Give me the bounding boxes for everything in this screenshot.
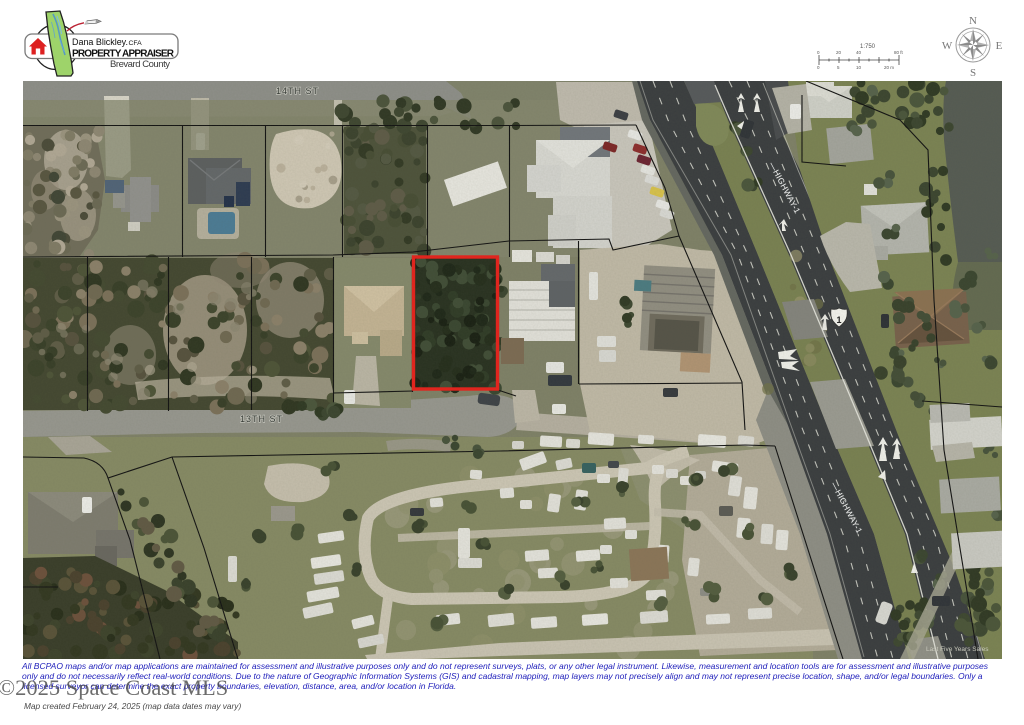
svg-text:80 ft: 80 ft	[894, 50, 904, 55]
svg-text:0: 0	[817, 50, 820, 55]
svg-text:PROPERTY APPRAISER: PROPERTY APPRAISER	[72, 49, 175, 60]
svg-text:10: 10	[856, 65, 862, 70]
svg-text:Brevard County: Brevard County	[110, 59, 170, 70]
svg-text:E: E	[996, 40, 1003, 52]
svg-text:5: 5	[837, 65, 840, 70]
svg-text:S: S	[970, 67, 976, 79]
svg-text:20: 20	[836, 50, 842, 55]
svg-text:40: 40	[856, 50, 862, 55]
svg-text:20 m: 20 m	[884, 65, 894, 70]
svg-text:CFA: CFA	[129, 40, 143, 47]
svg-text:1:750: 1:750	[860, 44, 876, 50]
svg-text:N: N	[969, 15, 977, 27]
svg-text:W: W	[942, 40, 953, 52]
svg-text:0: 0	[817, 65, 820, 70]
svg-text:Dana Blickley.: Dana Blickley.	[72, 37, 128, 47]
